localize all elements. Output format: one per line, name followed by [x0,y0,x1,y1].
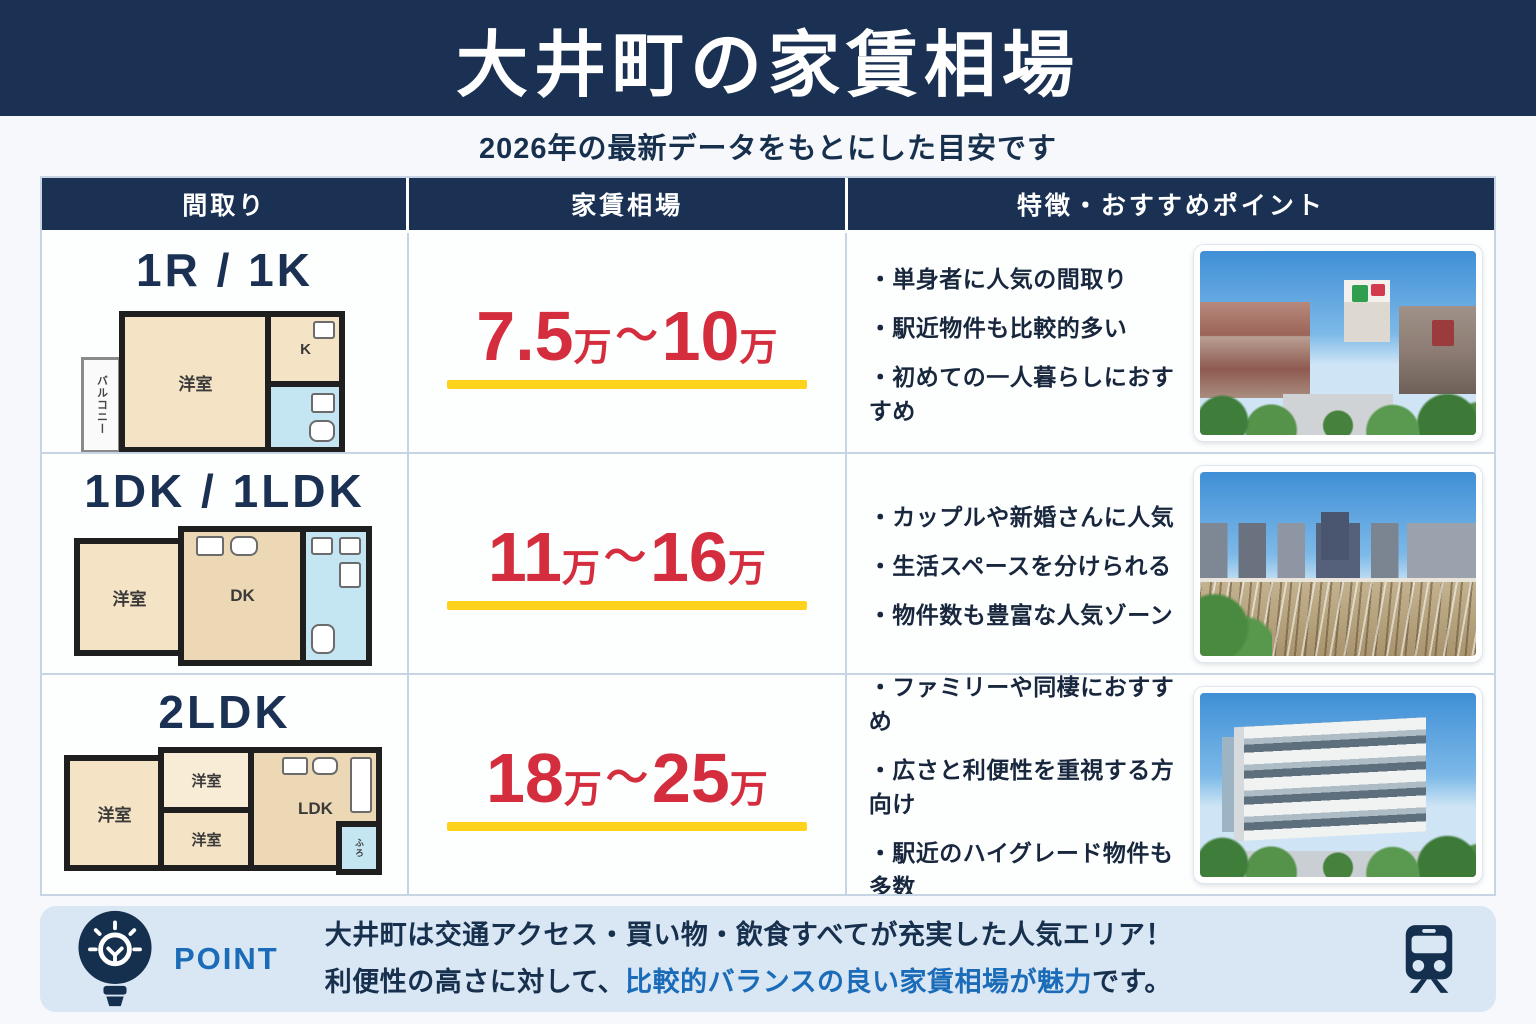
fixture-sink [339,537,361,555]
floorplan-western-room: 洋室 [119,311,271,452]
feature-list-1r1k: ・単身者に人気の間取り ・駅近物件も比較的多い ・初めての一人暮らしにおすすめ [869,245,1184,441]
photo-tower [1321,512,1349,560]
floorplan-kitchen: K [265,311,345,387]
fixture-toilet [313,321,335,339]
lightbulb-icon [76,909,154,1009]
infographic-page: 大井町の家賃相場 2026年の最新データをもとにした目安です 間取り 家賃相場 … [0,0,1536,1012]
feature-list-2ldk: ・ファミリーや同棲におすすめ ・広さと利便性を重視する方向け ・駅近のハイグレー… [869,675,1184,894]
price-underline [447,380,807,389]
table-row-3-layout-cell: 2LDK 洋室 洋室 洋室 LDK [42,675,407,894]
floorplan-balcony: バルコニー [81,357,121,452]
point-line2-prefix: 利便性の高さに対して、 [325,967,625,997]
floorplan-western-room: 洋室 [64,755,164,871]
subtitle-row: 2026年の最新データをもとにした目安です [0,116,1536,176]
feature-item: ・生活スペースを分けられる [869,547,1184,581]
point-line2-highlight: 比較的バランスの良い家賃相場が魅力 [625,967,1092,997]
oimachi-station-area-photo [1194,245,1482,441]
photo-apartment-building [1244,717,1426,841]
point-line2-suffix: です。 [1092,967,1172,997]
photo-trees [1194,383,1482,441]
feature-item: ・単身者に人気の間取り [869,260,1184,294]
price-underline [447,822,807,831]
floorplan-1r-1k: バルコニー 洋室 K [79,305,369,452]
photo-signage [1371,284,1385,297]
table-row-2-layout-cell: 1DK / 1LDK 洋室 DK [42,454,407,673]
point-line1: 大井町は交通アクセス・買い物・飲食すべてが充実した人気エリア！ [325,920,1173,950]
floorplan-western-room: 洋室 [158,807,254,871]
fixture-sink [230,536,258,556]
header-banner: 大井町の家賃相場 [0,0,1536,116]
feature-item: ・カップルや新婚さんに人気 [869,498,1184,532]
table-row-1-price-cell: 7.5万〜10万 [409,233,845,452]
feature-item: ・物件数も豊富な人気ゾーン [869,596,1184,630]
fixture-stove [282,757,308,775]
photo-trees [1200,586,1272,656]
fixture-toilet [311,537,333,555]
price-underline [447,601,807,610]
fixture-shower [339,562,361,588]
table-row-2-price-cell: 11万〜16万 [409,454,845,673]
photo-trees [1194,825,1482,883]
train-icon [1398,923,1460,995]
price-range-1dk1ldk: 11万〜16万 [488,517,766,597]
photo-signage [1352,285,1369,302]
page-subtitle: 2026年の最新データをもとにした目安です [479,125,1057,167]
floorplan-2ldk: 洋室 洋室 洋室 LDK ふろ [64,747,384,877]
column-header-features: 特徴・おすすめポイント [848,178,1494,230]
floorplan-dk-room: DK [178,526,306,666]
railway-cityscape-photo [1194,466,1482,662]
layout-title-1dk1ldk: 1DK / 1LDK [84,464,364,518]
table-row-2-features-cell: ・カップルや新婚さんに人気 ・生活スペースを分けられる ・物件数も豊富な人気ゾー… [847,454,1494,673]
layout-title-1r1k: 1R / 1K [136,243,313,297]
table-row-1-layout-cell: 1R / 1K バルコニー 洋室 K [42,233,407,452]
photo-building [1399,306,1476,394]
fixture-counter [350,757,372,813]
fixture-sink [311,393,335,413]
floorplan-bathroom: ふろ [336,821,382,875]
table-row-3-features-cell: ・ファミリーや同棲におすすめ ・広さと利便性を重視する方向け ・駅近のハイグレー… [847,675,1494,894]
layout-title-2ldk: 2LDK [158,685,290,739]
rent-table: 間取り 家賃相場 特徴・おすすめポイント 1R / 1K バルコニー 洋室 K [40,176,1496,896]
column-header-rent: 家賃相場 [409,178,844,230]
page-title: 大井町の家賃相場 [456,6,1080,111]
fixture-tub [311,624,335,654]
floorplan-western-room: 洋室 [158,747,254,813]
feature-item: ・駅近物件も比較的多い [869,309,1184,343]
point-text: 大井町は交通アクセス・買い物・飲食すべてが充実した人気エリア！ 利便性の高さに対… [325,912,1378,1007]
table-row-1-features-cell: ・単身者に人気の間取り ・駅近物件も比較的多い ・初めての一人暮らしにおすすめ [847,233,1494,452]
column-header-layout: 間取り [42,178,406,230]
table-header-row: 間取り 家賃相場 特徴・おすすめポイント [42,178,1494,233]
table-row-3-price-cell: 18万〜25万 [409,675,845,894]
feature-list-1dk1ldk: ・カップルや新婚さんに人気 ・生活スペースを分けられる ・物件数も豊富な人気ゾー… [869,483,1184,645]
floorplan-bathroom [265,381,345,452]
photo-signage [1432,320,1454,346]
feature-item: ・広さと利便性を重視する方向け [869,751,1184,819]
fixture-stove [196,536,224,556]
floorplan-western-room: 洋室 [74,538,184,656]
floorplan-bathroom [300,526,372,666]
feature-item: ・駅近のハイグレード物件も多数 [869,834,1184,895]
apartment-building-photo [1194,687,1482,883]
feature-item: ・ファミリーや同棲におすすめ [869,675,1184,736]
table-body: 1R / 1K バルコニー 洋室 K [42,233,1494,894]
fixture-tub [309,420,335,442]
point-label: POINT [174,941,279,977]
fixture-sink [312,757,338,775]
price-range-1r1k: 7.5万〜10万 [476,296,777,376]
feature-item: ・初めての一人暮らしにおすすめ [869,358,1184,426]
point-callout: POINT 大井町は交通アクセス・買い物・飲食すべてが充実した人気エリア！ 利便… [40,906,1496,1012]
floorplan-1dk-1ldk: 洋室 DK [74,526,374,666]
price-range-2ldk: 18万〜25万 [486,738,768,818]
